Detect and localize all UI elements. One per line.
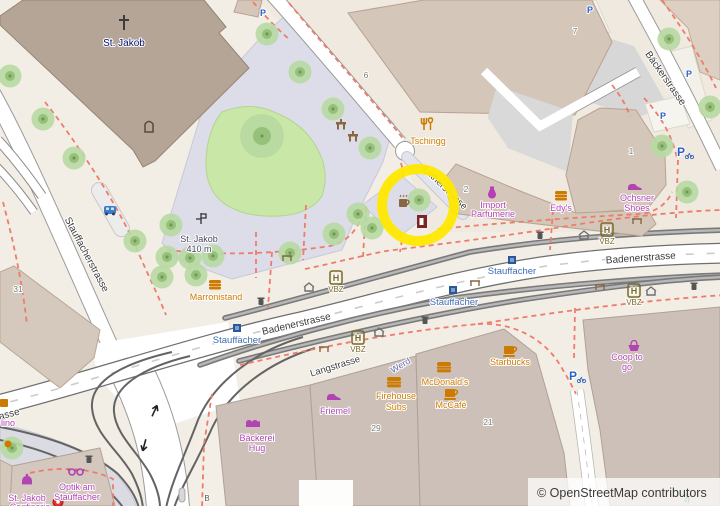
svg-text:Tschingg: Tschingg [410,136,446,146]
svg-text:Bäckerei: Bäckerei [239,433,274,443]
svg-text:P: P [569,369,577,383]
svg-text:Stauffacher: Stauffacher [54,492,100,502]
svg-text:Edy's: Edy's [550,203,572,213]
svg-text:Confiserie: Confiserie [10,502,51,506]
svg-text:1: 1 [629,146,634,156]
svg-text:P: P [686,69,692,79]
svg-text:H: H [333,273,340,283]
svg-text:McCafé: McCafé [435,400,466,410]
svg-text:P: P [587,5,593,15]
svg-text:29: 29 [371,423,381,433]
svg-text:H: H [631,286,638,296]
svg-text:H: H [355,333,362,343]
svg-text:P: P [260,8,266,18]
svg-text:7: 7 [573,26,578,36]
svg-text:Friemel: Friemel [320,406,350,416]
svg-text:Coop to: Coop to [611,352,643,362]
svg-text:St. Jakob: St. Jakob [103,38,145,49]
svg-text:Marronistand: Marronistand [190,292,243,302]
svg-text:H: H [604,225,611,235]
svg-text:VBZ: VBZ [626,298,642,307]
svg-text:Starbucks: Starbucks [490,357,531,367]
svg-text:21: 21 [483,417,493,427]
svg-text:McDonald's: McDonald's [422,377,469,387]
svg-text:Ochsner: Ochsner [620,193,654,203]
svg-text:go: go [622,362,632,372]
svg-text:VBZ: VBZ [599,237,615,246]
svg-text:VBZ: VBZ [350,345,366,354]
svg-text:2: 2 [464,184,469,194]
svg-text:31: 31 [13,284,23,294]
svg-text:Subs: Subs [386,402,407,412]
svg-text:P: P [677,145,685,159]
svg-text:St. Jakob: St. Jakob [180,234,218,244]
svg-text:P: P [660,111,666,121]
svg-text:Stauffacher: Stauffacher [430,297,478,308]
svg-text:410 m: 410 m [186,244,211,254]
svg-text:Hug: Hug [249,443,266,453]
svg-text:© OpenStreetMap contributors: © OpenStreetMap contributors [537,486,707,500]
svg-text:Stauffacher: Stauffacher [488,266,536,277]
svg-text:6: 6 [364,70,369,80]
svg-text:Stauffacher: Stauffacher [213,335,261,346]
svg-text:Optik am: Optik am [59,482,95,492]
svg-text:Firehouse: Firehouse [376,391,416,401]
svg-text:VBZ: VBZ [328,285,344,294]
svg-text:Shoes: Shoes [624,203,650,213]
svg-text:Parfumerie: Parfumerie [471,209,515,219]
svg-text:lino: lino [1,418,15,428]
svg-text:B: B [204,494,209,503]
